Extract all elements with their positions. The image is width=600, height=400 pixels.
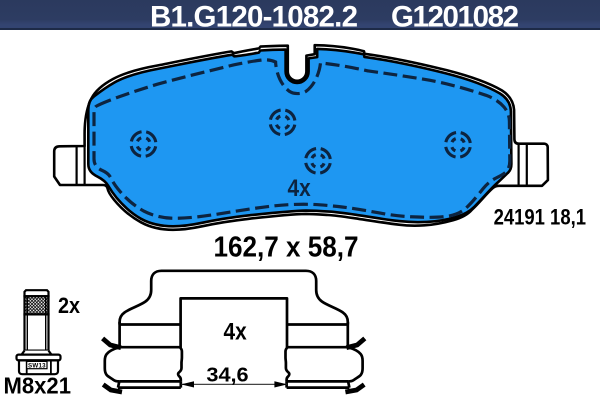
svg-text:4x: 4x	[224, 317, 247, 345]
svg-text:SW13: SW13	[28, 363, 46, 370]
svg-text:162,7 x 58,7: 162,7 x 58,7	[213, 230, 358, 263]
svg-text:2x: 2x	[58, 294, 80, 318]
svg-text:M8x21: M8x21	[4, 373, 71, 399]
svg-text:4x: 4x	[288, 173, 311, 201]
svg-text:G1201082: G1201082	[391, 0, 519, 33]
svg-text:24191 18,1: 24191 18,1	[494, 206, 586, 230]
svg-text:B1.G120-1082.2: B1.G120-1082.2	[150, 0, 358, 33]
svg-text:34,6: 34,6	[206, 364, 248, 386]
